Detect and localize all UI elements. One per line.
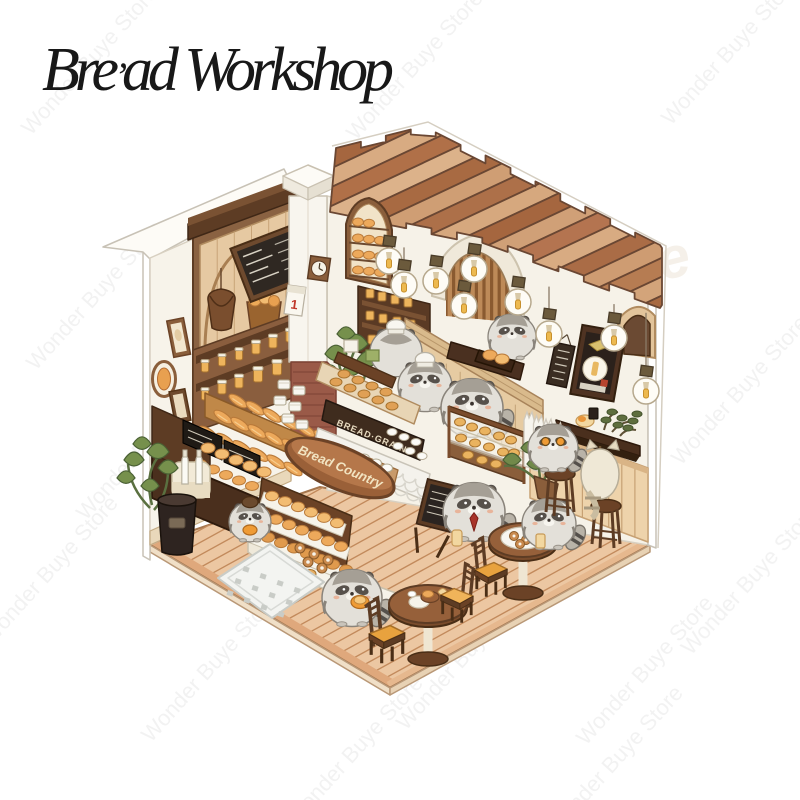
svg-text:Bre’ad Workshop: Bre’ad Workshop [42,36,394,104]
